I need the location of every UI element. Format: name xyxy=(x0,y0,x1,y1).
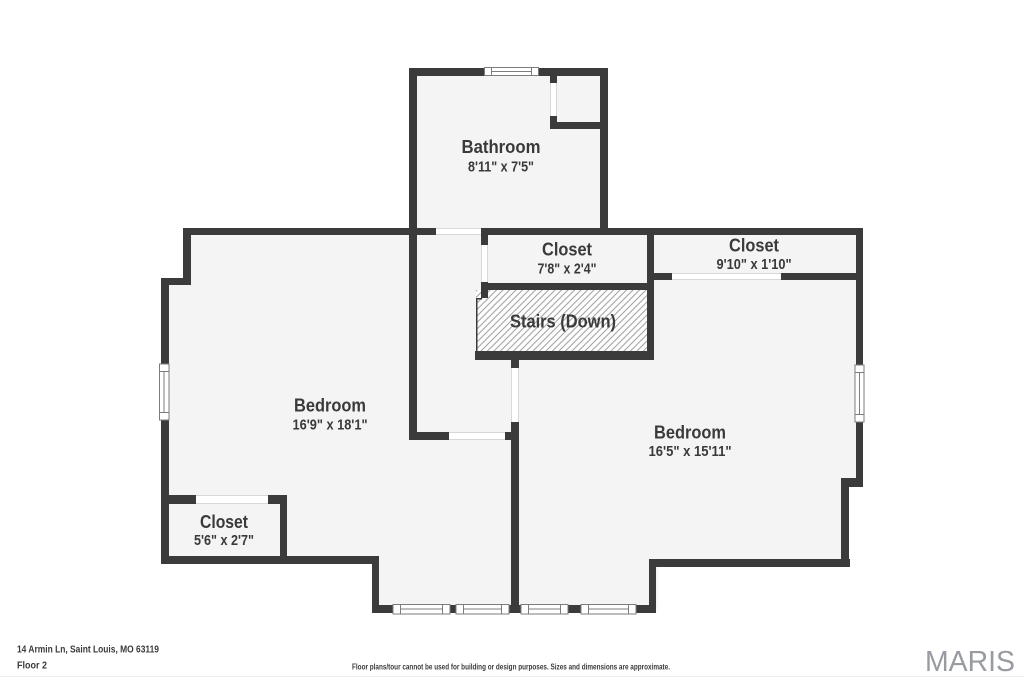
svg-text:9'10" x 1'10": 9'10" x 1'10" xyxy=(717,256,792,273)
svg-text:Floor 2: Floor 2 xyxy=(17,660,47,672)
svg-text:Bedroom: Bedroom xyxy=(294,396,366,416)
svg-text:5'6" x 2'7": 5'6" x 2'7" xyxy=(194,532,254,549)
svg-text:Stairs (Down): Stairs (Down) xyxy=(510,312,616,332)
svg-text:16'5" x 15'11": 16'5" x 15'11" xyxy=(649,443,732,460)
svg-text:7'8" x 2'4": 7'8" x 2'4" xyxy=(538,261,597,278)
svg-text:16'9" x 18'1": 16'9" x 18'1" xyxy=(293,417,368,434)
svg-text:MARIS: MARIS xyxy=(925,646,1015,678)
svg-text:Closet: Closet xyxy=(200,512,248,532)
svg-text:Closet: Closet xyxy=(729,236,779,256)
svg-text:Closet: Closet xyxy=(542,240,592,260)
svg-text:14 Armin Ln, Saint Louis, MO 6: 14 Armin Ln, Saint Louis, MO 63119 xyxy=(17,644,159,656)
svg-text:8'11" x 7'5": 8'11" x 7'5" xyxy=(468,159,534,176)
svg-text:Floor plans/tour cannot be use: Floor plans/tour cannot be used for buil… xyxy=(352,663,670,672)
svg-text:Bedroom: Bedroom xyxy=(654,423,726,443)
svg-text:Bathroom: Bathroom xyxy=(462,137,541,157)
